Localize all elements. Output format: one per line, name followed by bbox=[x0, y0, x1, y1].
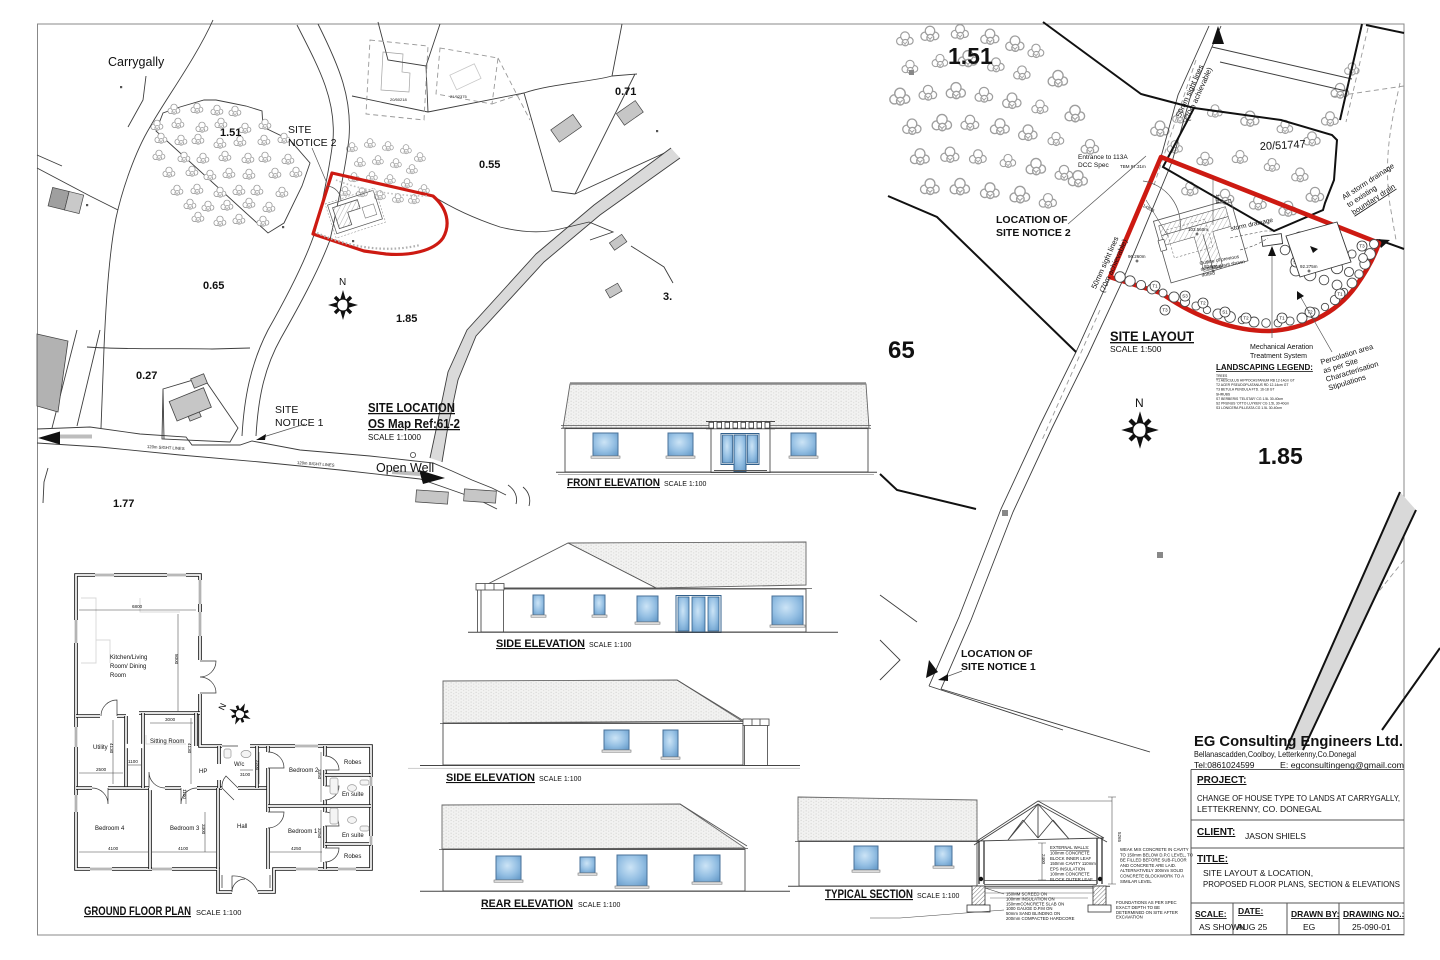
svg-text:4130: 4130 bbox=[109, 743, 114, 754]
svg-text:S7 BERBERIS 'TELSTAR' CG 1.5L: S7 BERBERIS 'TELSTAR' CG 1.5L 30-40cm bbox=[1216, 397, 1283, 401]
svg-text:SCALE 1:100: SCALE 1:100 bbox=[917, 893, 960, 900]
svg-text:SCALE 1:500: SCALE 1:500 bbox=[1110, 344, 1162, 354]
svg-text:SITE NOTICE 2: SITE NOTICE 2 bbox=[996, 227, 1071, 239]
svg-text:SITE LAYOUT & LOCATION,: SITE LAYOUT & LOCATION, bbox=[1203, 868, 1313, 878]
svg-text:TO 150mm BELOW D.P.C LEVEL, TO: TO 150mm BELOW D.P.C LEVEL, TO bbox=[1120, 852, 1194, 857]
svg-text:Entrance to 113A: Entrance to 113A bbox=[1078, 154, 1128, 161]
svg-text:W/c: W/c bbox=[234, 762, 244, 768]
svg-text:LOCATION OF: LOCATION OF bbox=[961, 648, 1033, 660]
svg-text:0.71: 0.71 bbox=[615, 86, 636, 98]
svg-text:PROPOSED FLOOR PLANS, SECTION: PROPOSED FLOOR PLANS, SECTION & ELEVATIO… bbox=[1203, 879, 1400, 889]
svg-text:1100: 1100 bbox=[182, 789, 187, 799]
svg-text:WEAK MIX CONCRETE IN CAVITY: WEAK MIX CONCRETE IN CAVITY bbox=[1120, 847, 1189, 852]
svg-text:4250: 4250 bbox=[291, 846, 302, 851]
svg-text:TBM 97.31m: TBM 97.31m bbox=[1120, 164, 1146, 169]
svg-text:TITLE:: TITLE: bbox=[1197, 854, 1228, 865]
svg-text:SIDE ELEVATION: SIDE ELEVATION bbox=[496, 638, 585, 650]
svg-text:SITE LAYOUT: SITE LAYOUT bbox=[1110, 329, 1195, 344]
svg-text:1.77: 1.77 bbox=[113, 498, 134, 510]
svg-text:2500: 2500 bbox=[96, 767, 107, 772]
svg-text:25-090-01: 25-090-01 bbox=[1352, 922, 1391, 932]
svg-text:SHRUBS: SHRUBS bbox=[1216, 392, 1231, 396]
svg-text:SCALE 1:100: SCALE 1:100 bbox=[539, 776, 582, 783]
svg-text:T1: T1 bbox=[1337, 292, 1343, 297]
svg-text:Carrygally: Carrygally bbox=[108, 55, 165, 69]
svg-text:3.: 3. bbox=[663, 291, 672, 303]
svg-text:1.85: 1.85 bbox=[1258, 443, 1303, 469]
svg-text:T3 BETULA PENDULA FTD. 16-18 G: T3 BETULA PENDULA FTD. 16-18 GT bbox=[1216, 388, 1274, 392]
svg-text:SIMILAR LEVEL: SIMILAR LEVEL bbox=[1120, 879, 1152, 884]
svg-text:1100: 1100 bbox=[128, 759, 138, 764]
svg-text:Bellanascadden,Coolboy, Letter: Bellanascadden,Coolboy, Letterkenny,Co.D… bbox=[1194, 749, 1356, 759]
svg-text:6800: 6800 bbox=[132, 604, 143, 609]
svg-text:LANDSCAPING LEGEND:: LANDSCAPING LEGEND: bbox=[1216, 363, 1313, 372]
svg-text:4100: 4100 bbox=[108, 846, 119, 851]
svg-text:T3: T3 bbox=[1162, 308, 1168, 313]
svg-text:AND CONCRETE ARE LAID.: AND CONCRETE ARE LAID. bbox=[1120, 863, 1176, 868]
svg-text:Open Well: Open Well bbox=[376, 461, 434, 475]
svg-text:ALTERNATIVELY 300mm SOLID: ALTERNATIVELY 300mm SOLID bbox=[1120, 868, 1183, 873]
svg-text:S3 LONICERA PILLEATA CG 1.5L 3: S3 LONICERA PILLEATA CG 1.5L 30-40cm bbox=[1216, 406, 1282, 410]
svg-text:2200: 2200 bbox=[255, 760, 260, 771]
svg-text:N: N bbox=[339, 277, 346, 288]
svg-text:T1 AESCULUS HIPPOCASTANUM RB 1: T1 AESCULUS HIPPOCASTANUM RB 12-14cm GT bbox=[1216, 379, 1295, 383]
svg-text:SCALE:: SCALE: bbox=[1195, 909, 1227, 919]
svg-text:SCALE 1:100: SCALE 1:100 bbox=[664, 481, 707, 488]
svg-text:BLOCK OUTER LEAF: BLOCK OUTER LEAF bbox=[1050, 877, 1093, 882]
svg-text:Sitting Room: Sitting Room bbox=[150, 739, 184, 745]
svg-text:Room: Room bbox=[110, 673, 126, 679]
svg-text:1.51: 1.51 bbox=[948, 43, 993, 69]
svg-text:200mm COMPACTED HARDCORE: 200mm COMPACTED HARDCORE bbox=[1006, 916, 1075, 921]
svg-text:SITE: SITE bbox=[288, 124, 311, 136]
svg-text:Utility: Utility bbox=[93, 745, 108, 751]
svg-text:TYPICAL SECTION: TYPICAL SECTION bbox=[825, 889, 913, 901]
svg-text:3100: 3100 bbox=[240, 772, 251, 777]
svg-text:BLOCK INNER LEAF: BLOCK INNER LEAF bbox=[1050, 856, 1091, 861]
svg-text:Bedroom 4: Bedroom 4 bbox=[95, 826, 125, 832]
svg-text:NOTICE 2: NOTICE 2 bbox=[288, 137, 337, 149]
svg-text:CHANGE OF HOUSE TYPE TO LANDS: CHANGE OF HOUSE TYPE TO LANDS AT CARRYGA… bbox=[1197, 793, 1400, 803]
svg-text:SITE NOTICE 1: SITE NOTICE 1 bbox=[961, 661, 1036, 673]
svg-text:Bedroom 1: Bedroom 1 bbox=[288, 829, 318, 835]
svg-text:4130: 4130 bbox=[187, 743, 192, 754]
svg-text:REAR ELEVATION: REAR ELEVATION bbox=[481, 898, 573, 910]
svg-text:LETTEKRENNY, CO. DONEGAL: LETTEKRENNY, CO. DONEGAL bbox=[1197, 804, 1322, 814]
svg-text:1.51: 1.51 bbox=[220, 127, 241, 139]
svg-text:LOCATION OF: LOCATION OF bbox=[996, 214, 1068, 226]
svg-text:SCALE 1:100: SCALE 1:100 bbox=[589, 642, 632, 649]
svg-text:0.55: 0.55 bbox=[479, 159, 500, 171]
svg-text:SCALE 1:100: SCALE 1:100 bbox=[578, 902, 621, 909]
svg-text:T3: T3 bbox=[1359, 244, 1365, 249]
svg-text:PROJECT:: PROJECT: bbox=[1197, 775, 1246, 786]
svg-text:TREES: TREES bbox=[1216, 374, 1228, 378]
svg-text:GROUND FLOOR PLAN: GROUND FLOOR PLAN bbox=[84, 904, 191, 918]
svg-text:21/92375: 21/92375 bbox=[450, 94, 467, 99]
svg-text:T1: T1 bbox=[1279, 316, 1285, 321]
svg-text:SCALE 1:100: SCALE 1:100 bbox=[196, 908, 241, 917]
svg-text:96.260m: 96.260m bbox=[1128, 254, 1146, 259]
svg-text:NOTICE 1: NOTICE 1 bbox=[275, 417, 324, 429]
svg-text:SITE LOCATION: SITE LOCATION bbox=[368, 401, 455, 415]
svg-text:CLIENT:: CLIENT: bbox=[1197, 827, 1235, 838]
svg-text:FRONT ELEVATION: FRONT ELEVATION bbox=[567, 477, 660, 489]
svg-text:20/50218: 20/50218 bbox=[390, 97, 407, 102]
svg-text:Room/ Dining: Room/ Dining bbox=[110, 664, 146, 670]
svg-text:SIDE ELEVATION: SIDE ELEVATION bbox=[446, 772, 535, 784]
svg-text:0.65: 0.65 bbox=[203, 280, 224, 292]
svg-text:Hall: Hall bbox=[237, 824, 247, 830]
svg-text:3250: 3250 bbox=[317, 828, 322, 839]
svg-text:Kitchen/Living: Kitchen/Living bbox=[110, 655, 147, 661]
svg-text:T1: T1 bbox=[1152, 284, 1158, 289]
svg-text:E: egconsultingeng@gmail.com: E: egconsultingeng@gmail.com bbox=[1280, 760, 1404, 770]
svg-text:T2: T2 bbox=[1200, 301, 1206, 306]
svg-text:3350: 3350 bbox=[317, 769, 322, 780]
svg-text:CONCRETE BLOCKWORK TO A: CONCRETE BLOCKWORK TO A bbox=[1120, 874, 1184, 879]
svg-text:EPS INSULATION: EPS INSULATION bbox=[1050, 866, 1085, 871]
svg-text:Treatment System: Treatment System bbox=[1250, 353, 1307, 360]
svg-text:100mm CONCRETE: 100mm CONCRETE bbox=[1050, 872, 1090, 877]
svg-text:0.27: 0.27 bbox=[136, 370, 157, 382]
svg-text:EXTERNAL WALLS:: EXTERNAL WALLS: bbox=[1050, 845, 1089, 850]
svg-text:EXCAVATION: EXCAVATION bbox=[1116, 915, 1143, 920]
svg-text:HP: HP bbox=[199, 769, 207, 775]
svg-text:Mechanical Aeration: Mechanical Aeration bbox=[1250, 344, 1313, 351]
svg-text:T2 ACER PSEUDOPLATANUS RD 12-1: T2 ACER PSEUDOPLATANUS RD 12-14cm GT bbox=[1216, 383, 1288, 387]
svg-text:EG Consulting Engineers Ltd.: EG Consulting Engineers Ltd. bbox=[1194, 733, 1403, 750]
svg-text:5265: 5265 bbox=[1117, 832, 1122, 843]
svg-text:Tel:0861024599: Tel:0861024599 bbox=[1194, 760, 1255, 770]
svg-text:3300: 3300 bbox=[201, 824, 206, 835]
svg-text:N: N bbox=[1135, 396, 1144, 410]
svg-text:En suite: En suite bbox=[342, 792, 364, 798]
svg-text:DRAWN BY:: DRAWN BY: bbox=[1291, 909, 1340, 919]
svg-text:BE FILLED BEFORE SUB-FLOOR: BE FILLED BEFORE SUB-FLOOR bbox=[1120, 858, 1187, 863]
svg-text:OS Map Ref:61-2: OS Map Ref:61-2 bbox=[368, 417, 460, 431]
svg-text:8000: 8000 bbox=[174, 654, 179, 665]
svg-text:DATE:: DATE: bbox=[1238, 906, 1264, 916]
svg-text:SCALE 1:1000: SCALE 1:1000 bbox=[368, 433, 421, 442]
svg-text:2400: 2400 bbox=[1041, 854, 1046, 865]
svg-text:S1: S1 bbox=[1222, 310, 1228, 315]
svg-text:AUG 25: AUG 25 bbox=[1237, 922, 1268, 932]
svg-text:92.275m: 92.275m bbox=[1300, 264, 1318, 269]
svg-text:1775: 1775 bbox=[1215, 194, 1220, 205]
svg-text:103.560m: 103.560m bbox=[1188, 227, 1208, 232]
svg-text:S3: S3 bbox=[1182, 294, 1188, 299]
svg-text:S2 PRUNUS 'OTTO LUYKEN' CG 1.5: S2 PRUNUS 'OTTO LUYKEN' CG 1.5L 30-40cm bbox=[1216, 402, 1289, 406]
svg-text:JASON SHIELS: JASON SHIELS bbox=[1245, 831, 1306, 841]
svg-text:T2: T2 bbox=[1243, 316, 1249, 321]
svg-text:Bedroom 3: Bedroom 3 bbox=[170, 826, 200, 832]
svg-text:Bedroom 2: Bedroom 2 bbox=[289, 768, 319, 774]
svg-text:4100: 4100 bbox=[178, 846, 189, 851]
svg-text:1.85: 1.85 bbox=[396, 313, 417, 325]
svg-text:DCC Spec: DCC Spec bbox=[1078, 162, 1109, 169]
svg-text:100mm CONCRETE: 100mm CONCRETE bbox=[1050, 851, 1090, 856]
svg-text:SITE: SITE bbox=[275, 404, 298, 416]
svg-text:En suite: En suite bbox=[342, 833, 364, 839]
svg-text:DRAWING NO.:: DRAWING NO.: bbox=[1343, 909, 1405, 919]
svg-text:20/51747: 20/51747 bbox=[1260, 139, 1306, 153]
svg-text:Robes: Robes bbox=[344, 760, 361, 766]
svg-text:150mm CAVITY 110mm: 150mm CAVITY 110mm bbox=[1050, 861, 1096, 866]
svg-text:EG: EG bbox=[1303, 922, 1315, 932]
svg-text:65: 65 bbox=[888, 337, 915, 364]
svg-text:3000: 3000 bbox=[165, 717, 176, 722]
svg-text:Robes: Robes bbox=[344, 854, 361, 860]
